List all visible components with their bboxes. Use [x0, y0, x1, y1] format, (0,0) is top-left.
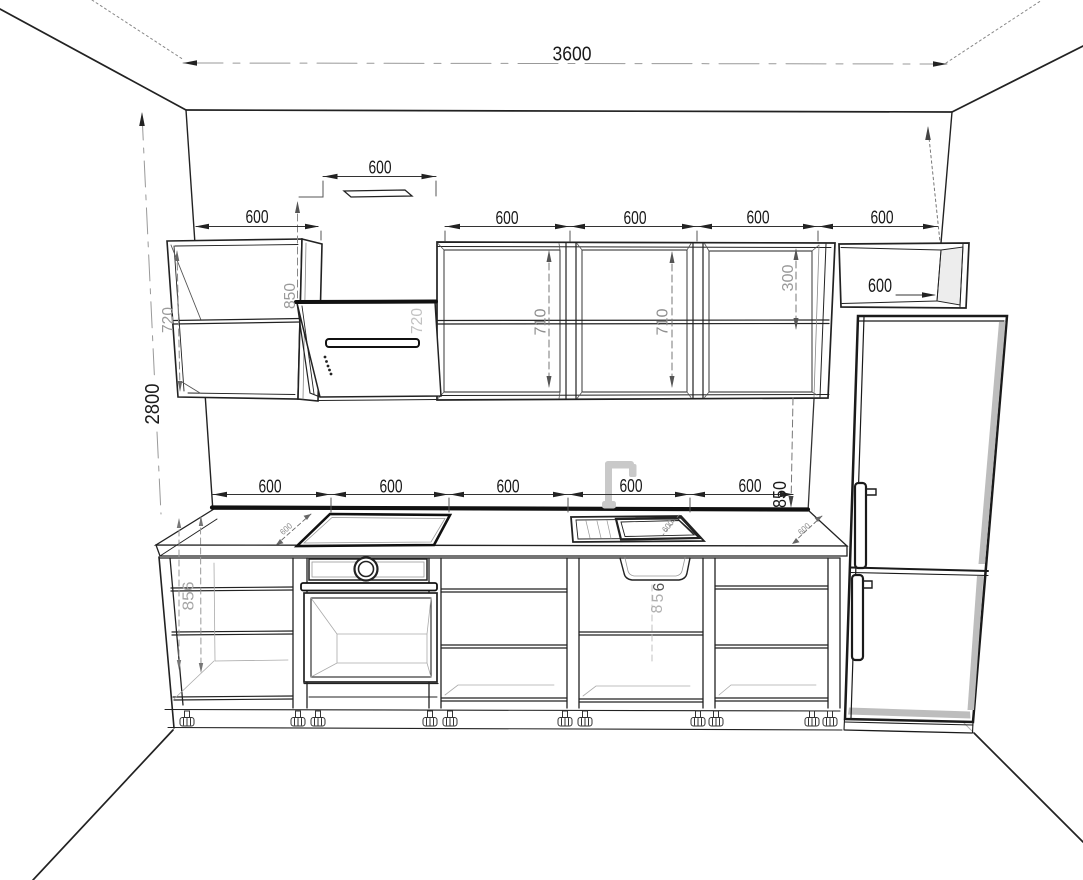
svg-text:600: 600 [496, 207, 519, 228]
svg-text:600: 600 [747, 207, 770, 228]
svg-text:600: 600 [871, 207, 894, 228]
svg-text:850: 850 [282, 283, 299, 309]
svg-text:8: 8 [649, 605, 666, 614]
svg-text:850: 850 [769, 481, 790, 508]
svg-text:856: 856 [181, 582, 198, 611]
svg-text:6: 6 [651, 583, 668, 592]
svg-text:720: 720 [160, 307, 177, 333]
svg-text:600: 600 [624, 207, 647, 228]
svg-text:600: 600 [497, 476, 520, 497]
svg-text:600: 600 [868, 276, 892, 297]
svg-text:2800: 2800 [142, 384, 164, 425]
svg-text:5: 5 [650, 594, 667, 603]
svg-text:3600: 3600 [553, 44, 592, 66]
svg-text:600: 600 [380, 476, 403, 497]
svg-text:710: 710 [533, 308, 550, 335]
svg-text:600: 600 [620, 475, 643, 496]
svg-text:600: 600 [246, 206, 269, 227]
svg-text:600: 600 [259, 476, 282, 497]
svg-text:600: 600 [369, 157, 392, 178]
svg-text:710: 710 [655, 308, 672, 335]
svg-text:600: 600 [739, 475, 762, 496]
svg-text:720: 720 [409, 308, 426, 334]
svg-text:300: 300 [780, 264, 797, 291]
